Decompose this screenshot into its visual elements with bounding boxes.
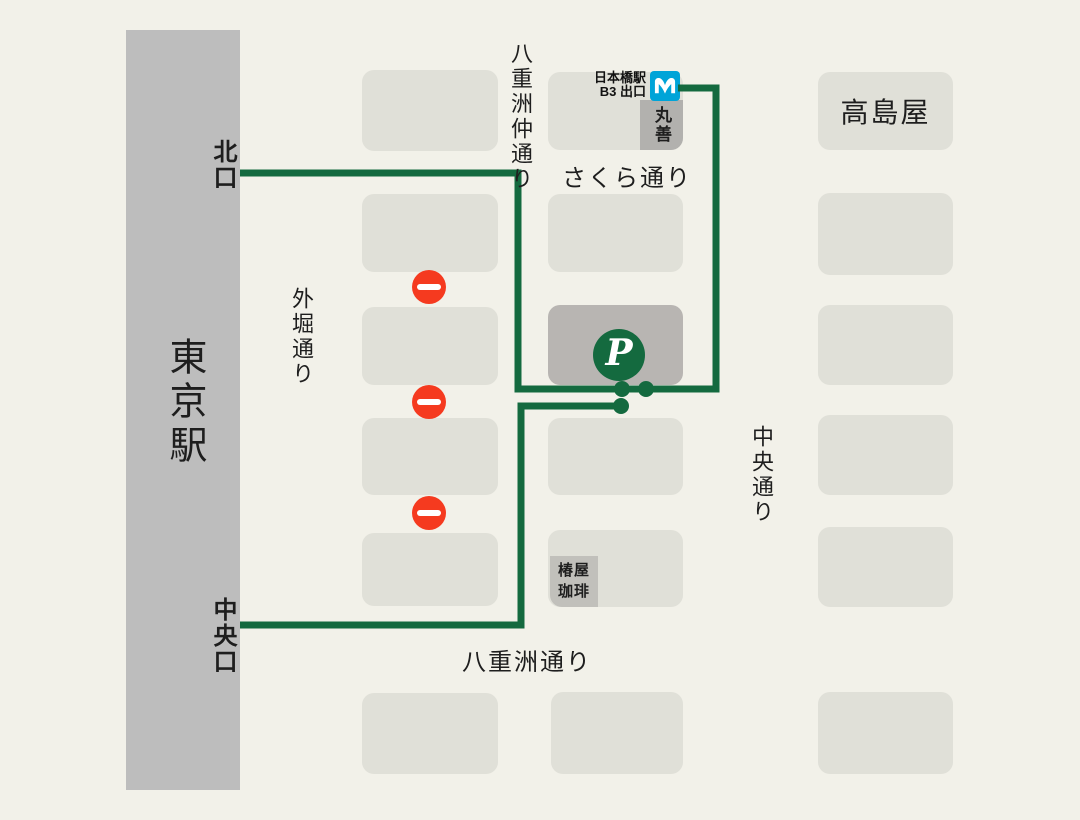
takashimaya-label: 高島屋 xyxy=(840,91,930,131)
maruzen-label-box: 丸善 xyxy=(640,100,683,150)
route-dot xyxy=(613,398,629,414)
city-block xyxy=(362,533,498,606)
access-map: 東京駅 北口 中央口 高島屋 丸善 椿屋 珈琲 日本橋駅 B3 出口 xyxy=(0,0,1080,820)
street-label-sotobori-dori: 外堀通り xyxy=(285,287,317,387)
nihombashi-exit-label-line1: 日本橋駅 xyxy=(560,71,646,85)
city-block xyxy=(548,418,683,495)
street-label-yaesu-naka-dori: 八重洲仲通り xyxy=(504,42,536,192)
nihombashi-exit-label-line2: B3 出口 xyxy=(560,85,646,99)
tsubakiya-label-line2: 珈琲 xyxy=(558,582,590,602)
city-block xyxy=(362,693,498,774)
city-block xyxy=(548,194,683,272)
station-name-label: 東京駅 xyxy=(157,337,212,469)
north-exit-label: 北口 xyxy=(205,139,240,191)
nihombashi-exit-label: 日本橋駅 B3 出口 xyxy=(560,71,646,100)
city-block xyxy=(551,692,683,774)
tsubakiya-coffee-label-box: 椿屋 珈琲 xyxy=(550,556,598,607)
city-block xyxy=(362,418,498,495)
maruzen-label: 丸善 xyxy=(649,106,674,144)
tokyo-metro-icon xyxy=(650,71,680,101)
no-entry-icon xyxy=(412,496,446,530)
city-block xyxy=(362,307,498,385)
street-label-chuo-dori: 中央通り xyxy=(745,425,777,525)
city-block xyxy=(818,527,953,607)
parking-icon: P xyxy=(593,329,645,381)
city-block xyxy=(818,415,953,495)
city-block xyxy=(818,305,953,385)
street-label-yaesu-dori: 八重洲通り xyxy=(462,642,592,677)
tsubakiya-label-line1: 椿屋 xyxy=(558,561,590,581)
parking-icon-letter: P xyxy=(605,332,632,374)
takashimaya-building: 高島屋 xyxy=(818,72,953,150)
central-exit-label: 中央口 xyxy=(205,597,240,675)
city-block xyxy=(818,692,953,774)
city-block xyxy=(818,193,953,275)
no-entry-icon xyxy=(412,385,446,419)
city-block xyxy=(362,70,498,151)
city-block xyxy=(362,194,498,272)
street-label-sakura-dori: さくら通り xyxy=(562,158,692,193)
no-entry-icon xyxy=(412,270,446,304)
